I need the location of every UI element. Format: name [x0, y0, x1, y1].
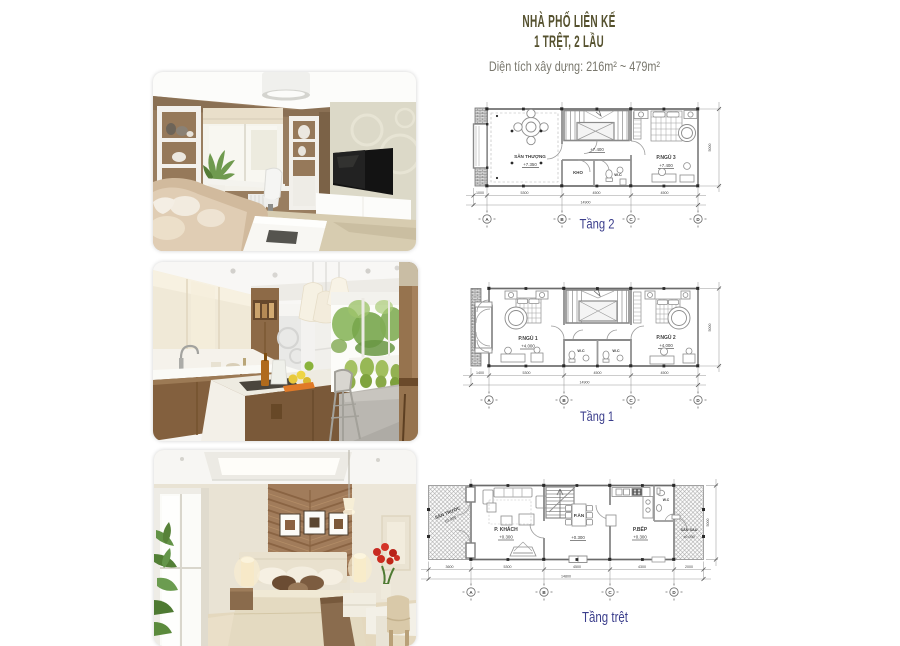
svg-text:P.NGỦ 3: P.NGỦ 3 [656, 154, 676, 161]
svg-text:Tầng trệt: Tầng trệt [582, 610, 628, 626]
svg-text:1000: 1000 [476, 191, 484, 195]
svg-text:±0.000: ±0.000 [683, 535, 695, 539]
svg-text:SÂN SAU: SÂN SAU [680, 527, 697, 532]
svg-text:5300: 5300 [523, 371, 531, 375]
svg-text:+7.400: +7.400 [659, 163, 673, 168]
svg-text:14800: 14800 [561, 575, 571, 579]
svg-text:4500: 4500 [593, 191, 601, 195]
svg-text:2000: 2000 [685, 565, 693, 569]
svg-text:P.NGỦ 1: P.NGỦ 1 [518, 335, 538, 342]
svg-text:+0.300: +0.300 [499, 535, 513, 540]
svg-text:4300: 4300 [638, 565, 646, 569]
svg-text:P.BẾP: P.BẾP [633, 526, 648, 533]
svg-text:4500: 4500 [573, 565, 581, 569]
svg-text:+4.000: +4.000 [659, 343, 673, 348]
svg-text:W.C: W.C [663, 498, 670, 502]
svg-text:Tầng 2: Tầng 2 [580, 217, 615, 232]
svg-text:5000: 5000 [706, 519, 710, 527]
svg-text:KHO: KHO [573, 170, 583, 175]
svg-text:4500: 4500 [661, 371, 669, 375]
svg-text:P. KHÁCH: P. KHÁCH [494, 526, 518, 533]
svg-text:+7.400: +7.400 [590, 147, 604, 152]
svg-text:SÂN THƯỢNG: SÂN THƯỢNG [514, 153, 546, 159]
svg-text:3600: 3600 [446, 565, 454, 569]
svg-text:5300: 5300 [521, 191, 529, 195]
svg-text:P.NGỦ 2: P.NGỦ 2 [656, 334, 676, 341]
svg-text:14900: 14900 [581, 201, 591, 205]
svg-text:Tầng 1: Tầng 1 [580, 409, 614, 424]
svg-text:W.C: W.C [612, 349, 619, 353]
svg-text:+0.300: +0.300 [571, 535, 585, 540]
svg-text:+7.350: +7.350 [523, 162, 537, 167]
svg-text:W.C: W.C [577, 349, 584, 353]
svg-text:+4.000: +4.000 [521, 344, 535, 349]
svg-text:5000: 5000 [708, 324, 712, 332]
svg-text:P.ĂN: P.ĂN [574, 512, 585, 518]
svg-text:5300: 5300 [504, 565, 512, 569]
svg-text:4500: 4500 [594, 371, 602, 375]
svg-text:W.C: W.C [614, 172, 622, 177]
svg-text:1400: 1400 [476, 371, 484, 375]
svg-text:14900: 14900 [580, 381, 590, 385]
svg-text:+0.300: +0.300 [633, 535, 647, 540]
svg-text:5000: 5000 [708, 144, 712, 152]
svg-text:4500: 4500 [661, 191, 669, 195]
